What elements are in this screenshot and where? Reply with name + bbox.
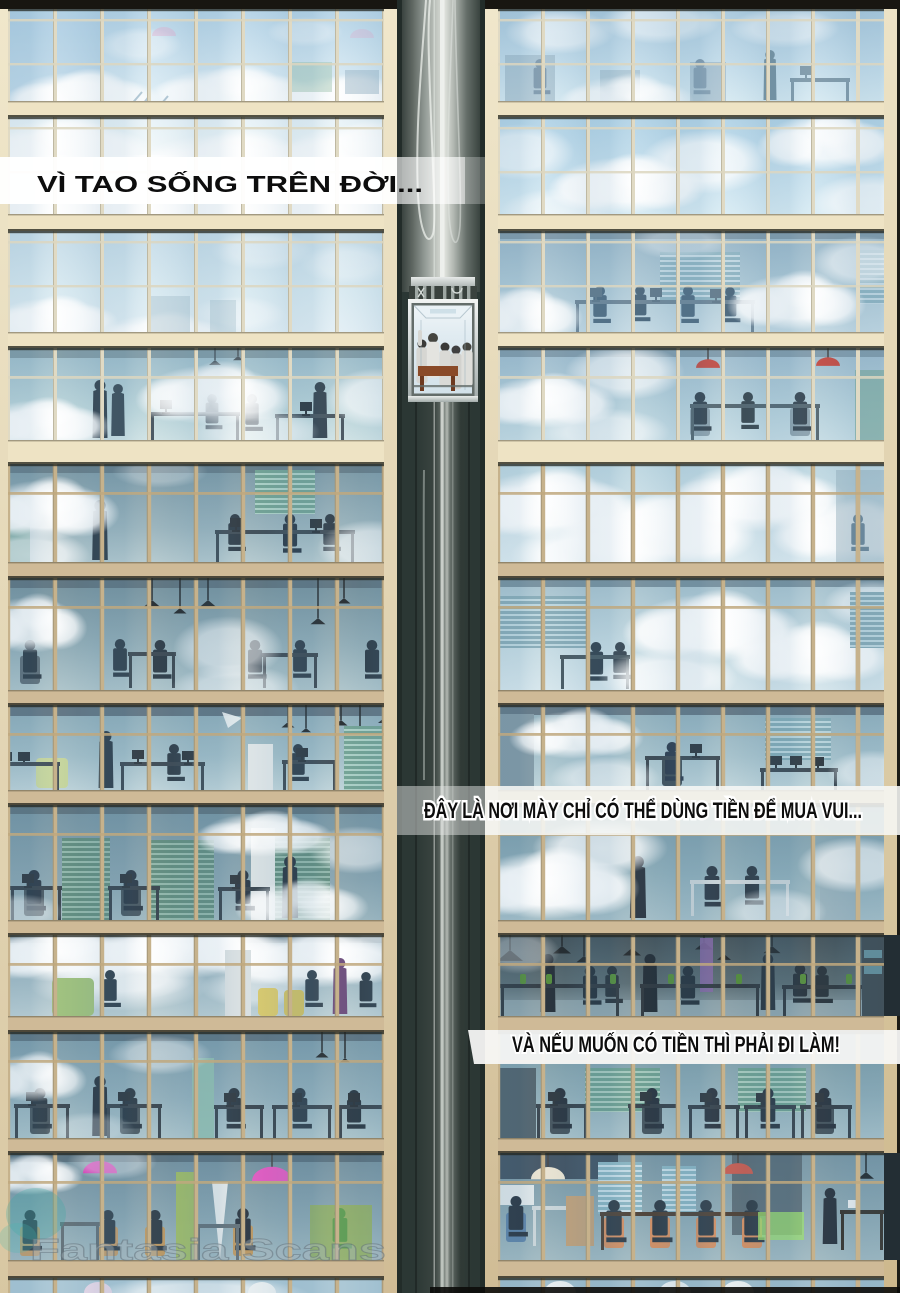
svg-text:VÌ TAO SỐNG TRÊN ĐỜI...: VÌ TAO SỐNG TRÊN ĐỜI...	[37, 170, 423, 197]
svg-text:ĐÂY LÀ NƠI MÀY CHỈ CÓ THỂ DÙNG: ĐÂY LÀ NƠI MÀY CHỈ CÓ THỂ DÙNG TIỀN ĐỂ M…	[424, 798, 862, 823]
svg-text:Fantasia Scans: Fantasia Scans	[30, 1232, 386, 1267]
svg-text:VÀ NẾU MUỐN CÓ TIỀN THÌ PHẢI Đ: VÀ NẾU MUỐN CÓ TIỀN THÌ PHẢI ĐI LÀM!	[512, 1031, 840, 1057]
